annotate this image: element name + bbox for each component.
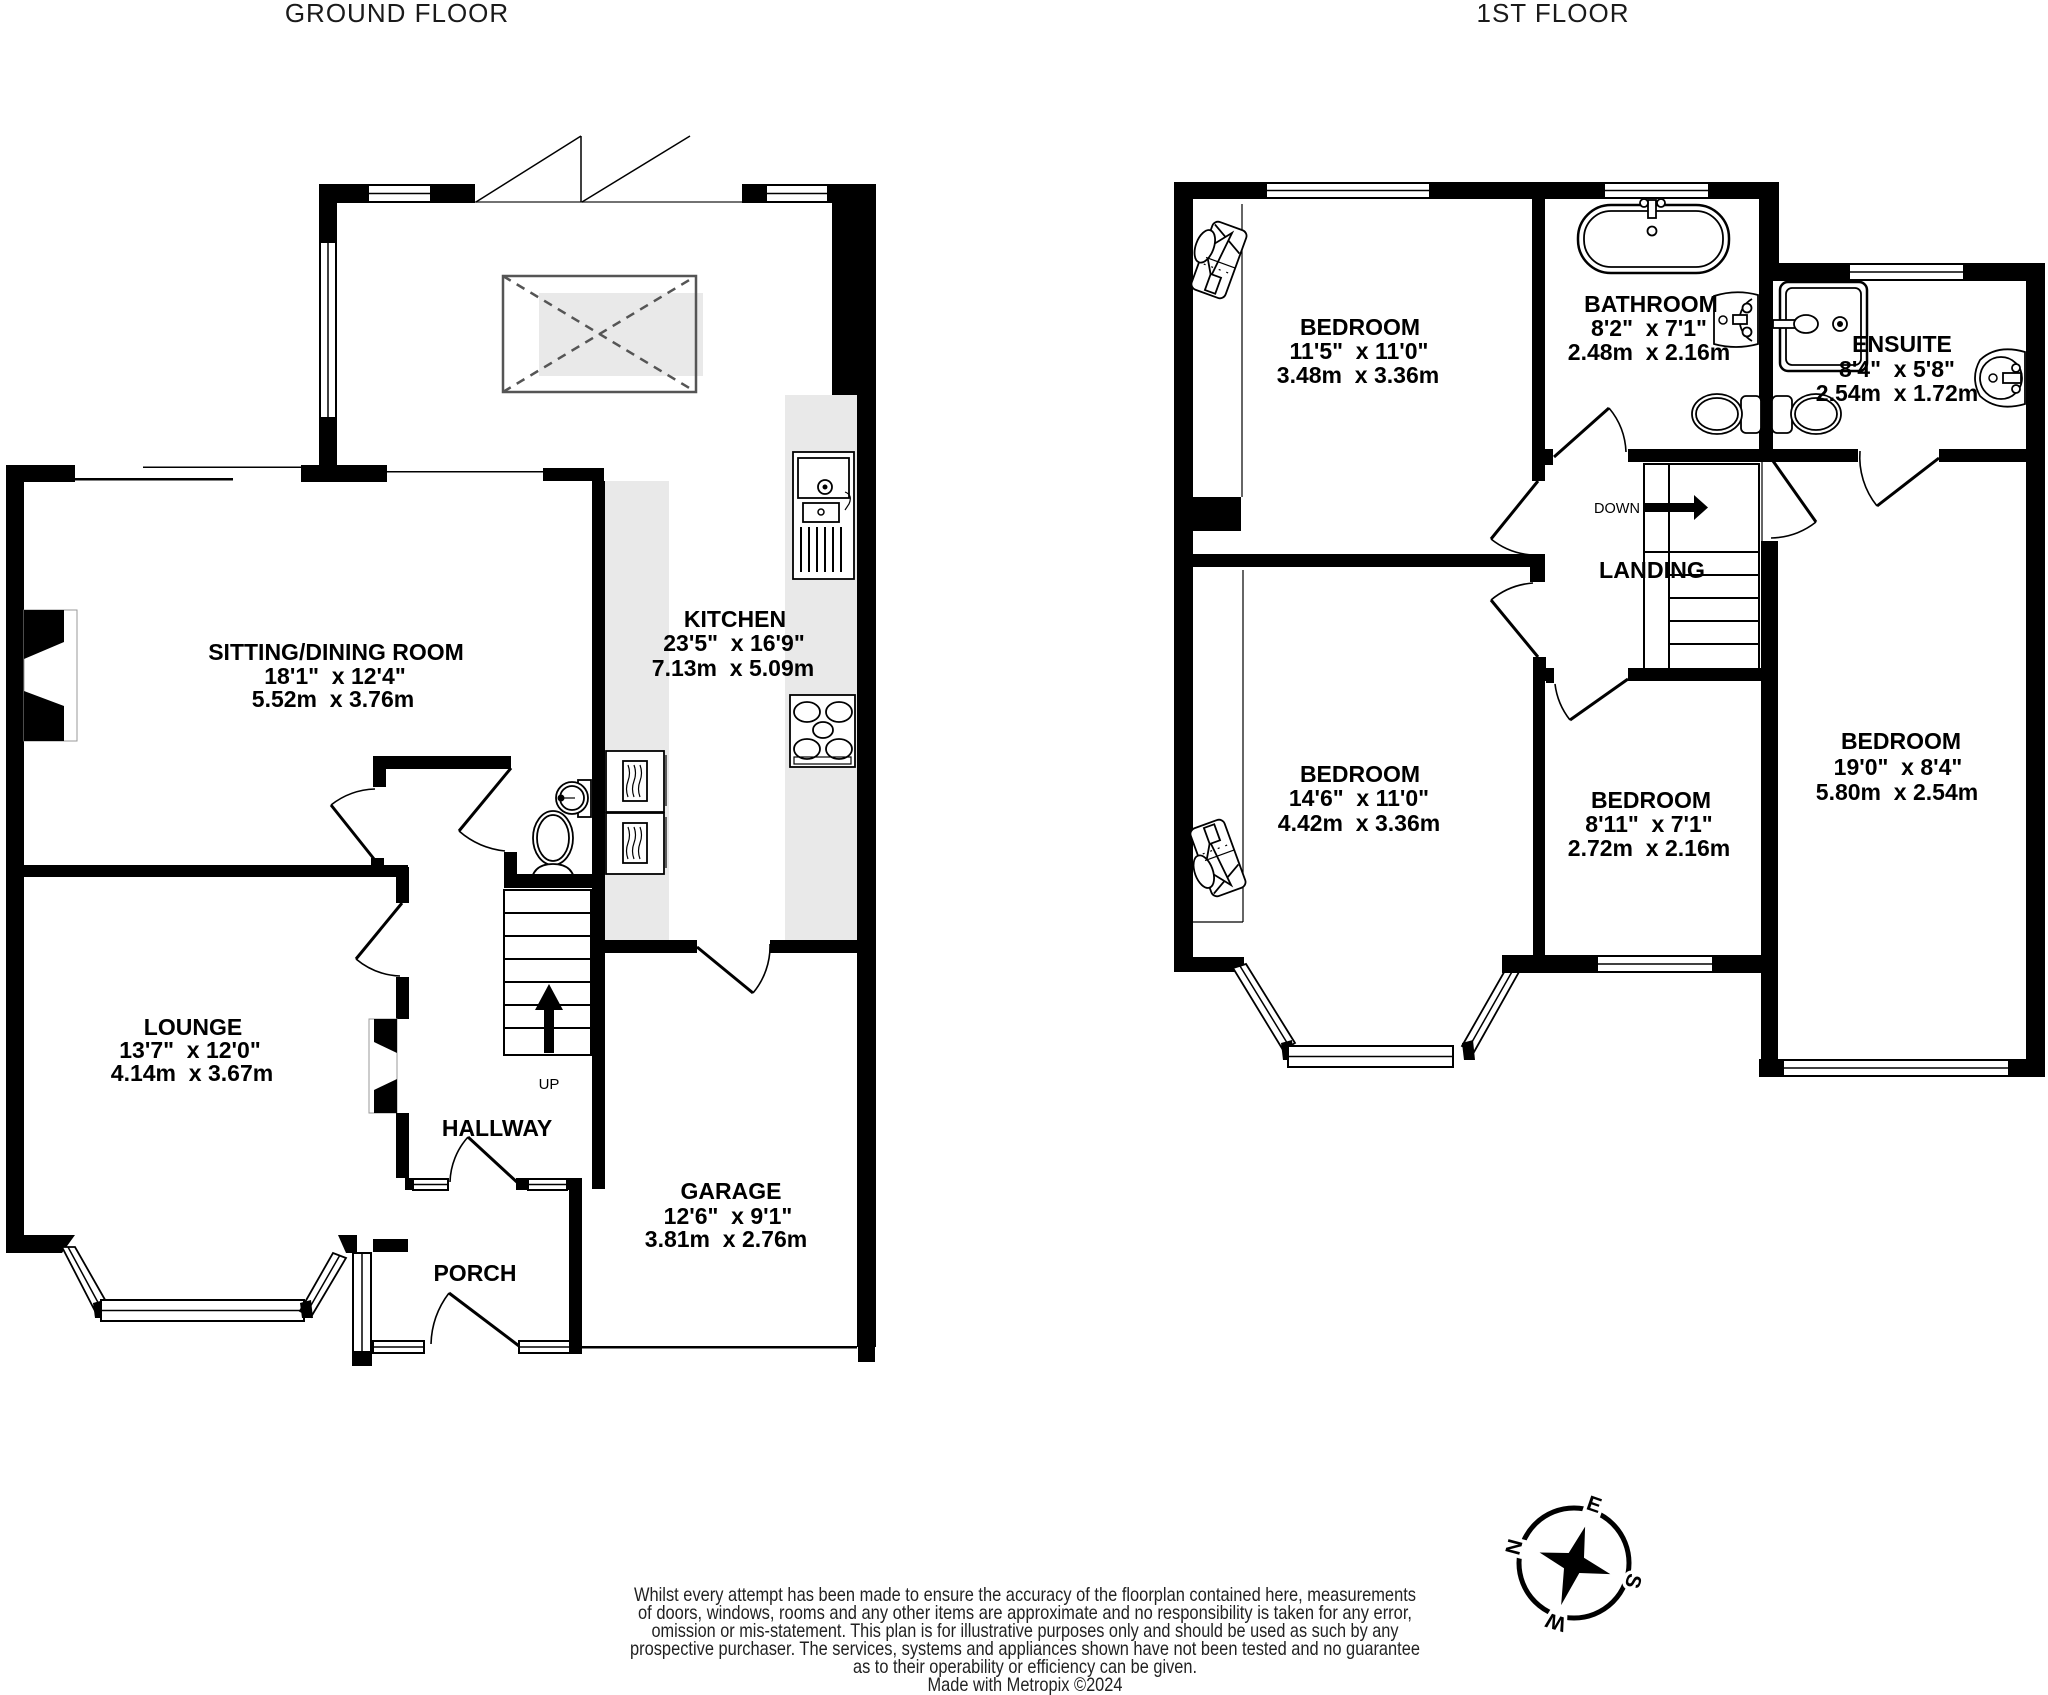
svg-text:8'4" x 5'8": 8'4" x 5'8"	[1839, 356, 1955, 382]
svg-text:Made with Metropix ©2024: Made with Metropix ©2024	[928, 1674, 1123, 1695]
svg-text:BEDROOM: BEDROOM	[1591, 787, 1711, 813]
svg-text:DOWN: DOWN	[1594, 500, 1640, 517]
svg-text:BEDROOM: BEDROOM	[1300, 761, 1420, 787]
svg-text:KITCHEN: KITCHEN	[684, 606, 786, 632]
svg-text:11'5" x 11'0": 11'5" x 11'0"	[1290, 338, 1429, 364]
svg-text:23'5" x 16'9": 23'5" x 16'9"	[663, 630, 804, 656]
svg-text:2.54m x 1.72m: 2.54m x 1.72m	[1816, 380, 1978, 406]
svg-text:8'11" x 7'1": 8'11" x 7'1"	[1585, 811, 1712, 837]
svg-text:BATHROOM: BATHROOM	[1584, 291, 1718, 317]
svg-text:4.14m x 3.67m: 4.14m x 3.67m	[111, 1060, 273, 1086]
svg-text:1ST FLOOR: 1ST FLOOR	[1476, 0, 1629, 28]
svg-text:7.13m x 5.09m: 7.13m x 5.09m	[652, 655, 814, 681]
svg-text:2.72m x 2.16m: 2.72m x 2.16m	[1568, 835, 1730, 861]
svg-text:4.42m x 3.36m: 4.42m x 3.36m	[1278, 810, 1440, 836]
svg-text:2.48m x 2.16m: 2.48m x 2.16m	[1568, 339, 1730, 365]
svg-text:8'2" x 7'1": 8'2" x 7'1"	[1591, 315, 1707, 341]
svg-text:BEDROOM: BEDROOM	[1300, 314, 1420, 340]
svg-text:3.48m x 3.36m: 3.48m x 3.36m	[1277, 362, 1439, 388]
svg-text:PORCH: PORCH	[433, 1260, 516, 1286]
svg-text:GARAGE: GARAGE	[681, 1178, 782, 1204]
svg-text:BEDROOM: BEDROOM	[1841, 728, 1961, 754]
svg-text:3.81m x 2.76m: 3.81m x 2.76m	[645, 1226, 807, 1252]
svg-text:19'0" x 8'4": 19'0" x 8'4"	[1834, 754, 1963, 780]
svg-text:UP: UP	[539, 1076, 560, 1093]
svg-text:14'6" x 11'0": 14'6" x 11'0"	[1289, 785, 1429, 811]
svg-text:5.80m x 2.54m: 5.80m x 2.54m	[1816, 779, 1978, 805]
svg-text:LANDING: LANDING	[1599, 557, 1705, 583]
svg-text:GROUND FLOOR: GROUND FLOOR	[285, 0, 509, 28]
svg-text:5.52m x 3.76m: 5.52m x 3.76m	[252, 686, 414, 712]
svg-text:HALLWAY: HALLWAY	[442, 1115, 552, 1141]
svg-text:SITTING/DINING ROOM: SITTING/DINING ROOM	[208, 639, 464, 665]
svg-text:ENSUITE: ENSUITE	[1852, 331, 1952, 357]
